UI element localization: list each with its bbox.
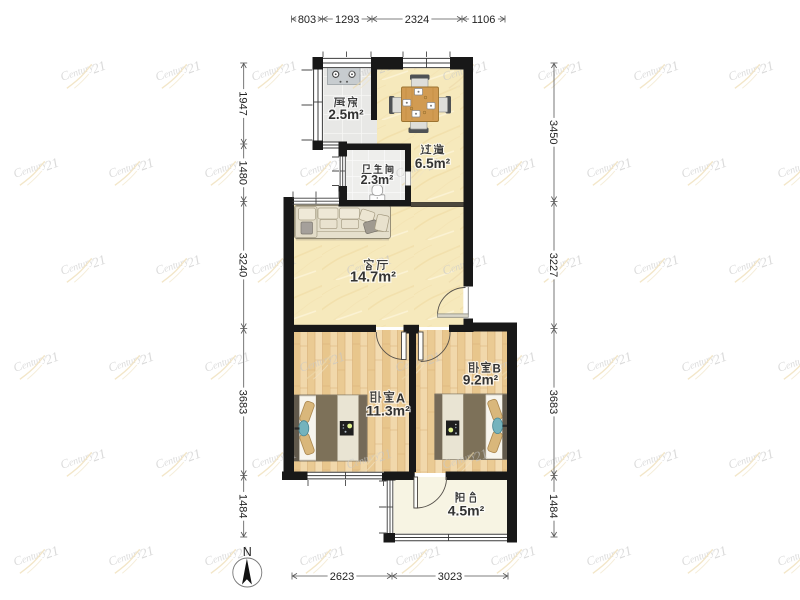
- svg-text:3683: 3683: [547, 390, 559, 414]
- svg-text:1293: 1293: [335, 14, 359, 26]
- svg-text:14.7m²: 14.7m²: [350, 270, 396, 286]
- svg-text:3023: 3023: [438, 571, 462, 583]
- svg-text:2.5m²: 2.5m²: [328, 107, 364, 122]
- svg-text:9.2m²: 9.2m²: [463, 373, 499, 388]
- svg-text:3450: 3450: [547, 120, 559, 144]
- svg-text:N: N: [243, 545, 252, 559]
- svg-text:1106: 1106: [472, 14, 496, 26]
- svg-text:4.5m²: 4.5m²: [448, 503, 485, 519]
- svg-text:6.5m²: 6.5m²: [415, 156, 451, 171]
- svg-text:1947: 1947: [237, 91, 249, 115]
- svg-text:1484: 1484: [547, 494, 559, 518]
- svg-text:3240: 3240: [237, 253, 249, 277]
- svg-text:1484: 1484: [237, 494, 249, 518]
- svg-text:11.3m²: 11.3m²: [366, 403, 410, 419]
- svg-text:1480: 1480: [237, 161, 249, 185]
- svg-text:2324: 2324: [405, 14, 429, 26]
- svg-text:3683: 3683: [237, 390, 249, 414]
- svg-text:3227: 3227: [547, 253, 559, 277]
- svg-text:2.3m²: 2.3m²: [361, 173, 394, 187]
- svg-text:2623: 2623: [330, 571, 354, 583]
- svg-text:803: 803: [298, 14, 316, 26]
